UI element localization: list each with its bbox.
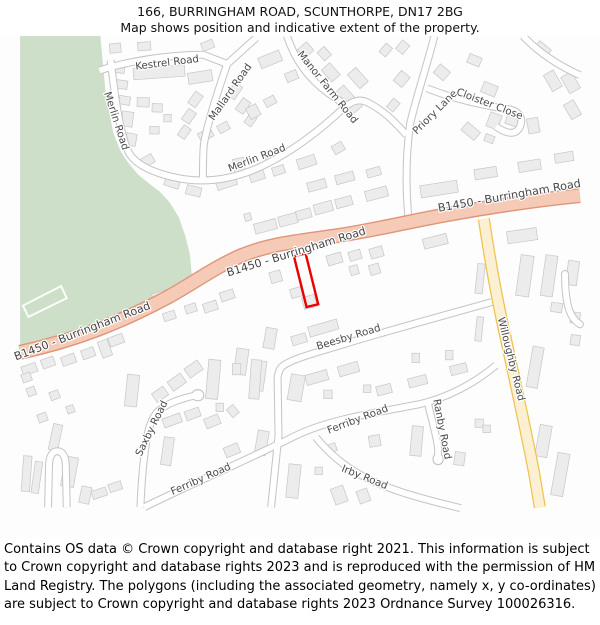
building	[203, 414, 221, 429]
building	[484, 134, 495, 144]
building	[410, 426, 424, 457]
building	[551, 452, 570, 496]
building	[483, 425, 490, 432]
building	[550, 302, 562, 313]
building	[217, 121, 231, 134]
building	[386, 98, 400, 112]
building	[395, 40, 409, 55]
building	[348, 249, 362, 261]
building	[412, 353, 419, 362]
building	[219, 289, 235, 302]
building	[152, 103, 163, 112]
building	[474, 166, 498, 180]
building	[369, 246, 384, 259]
building	[368, 263, 381, 276]
building	[48, 423, 63, 450]
building	[422, 233, 448, 249]
building	[286, 464, 302, 499]
building	[188, 91, 204, 108]
building	[164, 114, 171, 121]
building	[244, 213, 252, 222]
building	[167, 373, 186, 391]
building	[80, 347, 95, 360]
building	[535, 424, 552, 457]
road-label-ferriby-west: Ferriby Road	[169, 461, 233, 498]
building	[184, 360, 203, 378]
map-header: 166, BURRINGHAM ROAD, SCUNTHORPE, DN17 2…	[0, 0, 600, 36]
building	[287, 374, 305, 402]
building	[324, 390, 332, 398]
building	[137, 97, 149, 107]
building	[109, 43, 121, 53]
building	[516, 255, 535, 297]
building	[363, 385, 370, 392]
building	[526, 117, 540, 134]
building	[475, 263, 486, 293]
building	[337, 361, 360, 377]
building	[263, 95, 277, 108]
building	[364, 186, 388, 202]
property-address-title: 166, BURRINGHAM ROAD, SCUNTHORPE, DN17 2…	[0, 0, 600, 20]
building	[295, 208, 312, 221]
building	[308, 319, 340, 337]
building	[543, 70, 562, 92]
building	[393, 70, 410, 87]
building	[271, 164, 285, 176]
attribution-text: Contains OS data © Crown copyright and d…	[4, 541, 596, 614]
building	[347, 67, 368, 88]
building	[315, 467, 322, 474]
building	[162, 310, 176, 322]
building	[187, 70, 213, 85]
building	[475, 419, 483, 427]
map-description-subtitle: Map shows position and indicative extent…	[0, 20, 600, 36]
building	[181, 108, 196, 124]
building	[307, 178, 327, 192]
building	[108, 333, 125, 347]
building	[269, 270, 283, 284]
building	[467, 53, 483, 67]
building	[305, 369, 329, 385]
building	[223, 443, 241, 458]
building	[150, 127, 159, 134]
building	[326, 252, 343, 266]
building	[433, 64, 450, 81]
road-label-manor-farm: Manor Farm Road	[295, 49, 361, 126]
building	[317, 46, 331, 61]
building	[540, 255, 558, 297]
building	[37, 412, 49, 423]
building	[202, 300, 218, 313]
building	[356, 488, 371, 504]
building	[253, 218, 277, 234]
building	[49, 390, 61, 401]
building	[570, 334, 581, 345]
building	[407, 374, 427, 388]
building	[60, 353, 76, 367]
building	[366, 166, 382, 178]
building	[331, 141, 345, 155]
building	[216, 403, 223, 411]
building	[368, 434, 381, 447]
building	[26, 386, 37, 397]
building	[124, 374, 139, 407]
building	[554, 151, 574, 163]
building	[200, 39, 214, 51]
building	[185, 185, 202, 198]
building	[335, 171, 355, 185]
building	[296, 154, 317, 170]
building	[563, 100, 581, 120]
building	[461, 122, 480, 141]
building	[475, 317, 484, 342]
building	[21, 456, 32, 492]
building	[137, 42, 151, 51]
building	[349, 265, 360, 276]
building	[31, 461, 43, 493]
building	[226, 404, 239, 417]
building	[518, 159, 542, 173]
building	[420, 180, 459, 198]
building	[258, 50, 283, 69]
building	[454, 452, 466, 466]
building	[449, 363, 468, 376]
building	[313, 200, 334, 215]
building	[506, 228, 537, 244]
building	[108, 481, 123, 493]
building	[232, 364, 240, 375]
building	[184, 303, 197, 314]
building	[91, 487, 108, 500]
building	[160, 437, 174, 466]
building	[79, 486, 93, 505]
building	[184, 407, 201, 421]
building	[291, 333, 308, 346]
building	[177, 125, 191, 140]
building	[335, 195, 354, 208]
building	[446, 350, 453, 359]
building	[263, 327, 278, 349]
map-canvas: Kestrel Road Merlin Road Mallard Road Me…	[0, 36, 600, 538]
building	[376, 383, 393, 396]
building	[379, 43, 393, 57]
building	[526, 346, 544, 388]
road-label-irby: Irby Road	[340, 463, 390, 492]
building	[249, 359, 262, 399]
ordnance-survey-map: Kestrel Road Merlin Road Mallard Road Me…	[0, 36, 600, 538]
building	[205, 359, 220, 399]
building	[284, 70, 299, 83]
building	[278, 212, 299, 227]
road-label-mallard: Mallard Road	[206, 61, 254, 122]
building	[40, 356, 55, 369]
building	[66, 404, 76, 414]
building	[330, 485, 348, 505]
